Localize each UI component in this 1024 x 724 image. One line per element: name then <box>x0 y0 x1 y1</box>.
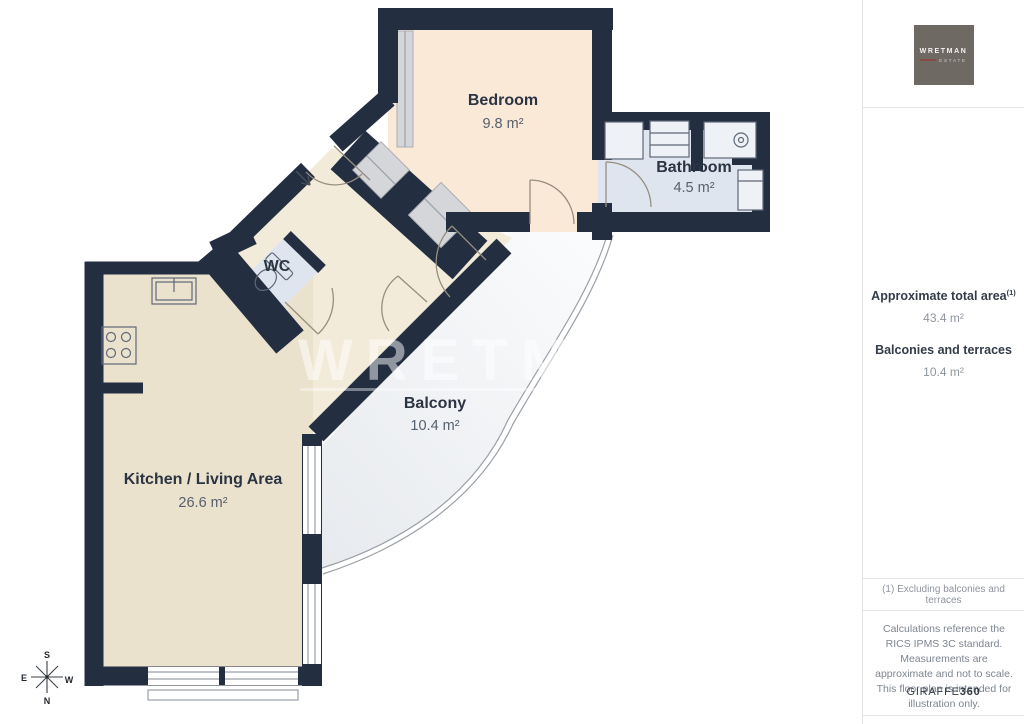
svg-text:E: E <box>21 673 27 683</box>
svg-text:Bedroom: Bedroom <box>468 92 538 109</box>
total-area-heading: Approximate total area(1) <box>863 288 1024 303</box>
svg-text:Bathroom: Bathroom <box>656 159 732 176</box>
divider <box>863 610 1024 611</box>
svg-text:10.4 m²: 10.4 m² <box>410 418 459 434</box>
logo-accent-line <box>920 59 936 61</box>
svg-text:26.6 m²: 26.6 m² <box>178 495 227 511</box>
washing-machine <box>704 122 756 158</box>
balconies-value: 10.4 m² <box>863 365 1024 379</box>
compass-rose: S N E W <box>21 650 74 706</box>
svg-text:S: S <box>44 650 50 660</box>
area-footnote: (1) Excluding balconies and terraces <box>863 584 1024 606</box>
svg-text:4.5 m²: 4.5 m² <box>673 180 714 196</box>
logo-subtext: ESTATE <box>939 58 967 63</box>
disclaimer-text: Calculations reference the RICS IPMS 3C … <box>875 622 1013 711</box>
wc-label: WC <box>264 258 291 275</box>
svg-text:WRETMAN: WRETMAN <box>298 328 692 393</box>
bedroom-wardrobe <box>397 31 413 147</box>
watermark-text: WRETMAN <box>298 328 692 393</box>
area-summary: Approximate total area(1) 43.4 m² Balcon… <box>863 288 1024 397</box>
svg-text:W: W <box>65 675 74 685</box>
total-area-value: 43.4 m² <box>863 311 1024 325</box>
svg-text:WC: WC <box>264 258 291 275</box>
svg-text:Kitchen / Living Area: Kitchen / Living Area <box>124 471 283 488</box>
svg-text:N: N <box>44 696 51 706</box>
giraffe360-brand: GIRAFFE360 <box>863 686 1024 698</box>
logo-text: WRETMAN <box>920 48 968 55</box>
divider <box>863 107 1024 108</box>
divider <box>863 715 1024 716</box>
balconies-heading: Balconies and terraces <box>863 343 1024 357</box>
shower <box>605 122 643 159</box>
radiator <box>650 121 689 157</box>
bathroom-toilet <box>738 170 763 210</box>
svg-text:9.8 m²: 9.8 m² <box>482 116 523 132</box>
svg-text:Balcony: Balcony <box>404 395 466 412</box>
info-sidebar: WRETMAN ESTATE Approximate total area(1)… <box>862 0 1024 724</box>
brand-logo: WRETMAN ESTATE <box>914 25 974 85</box>
